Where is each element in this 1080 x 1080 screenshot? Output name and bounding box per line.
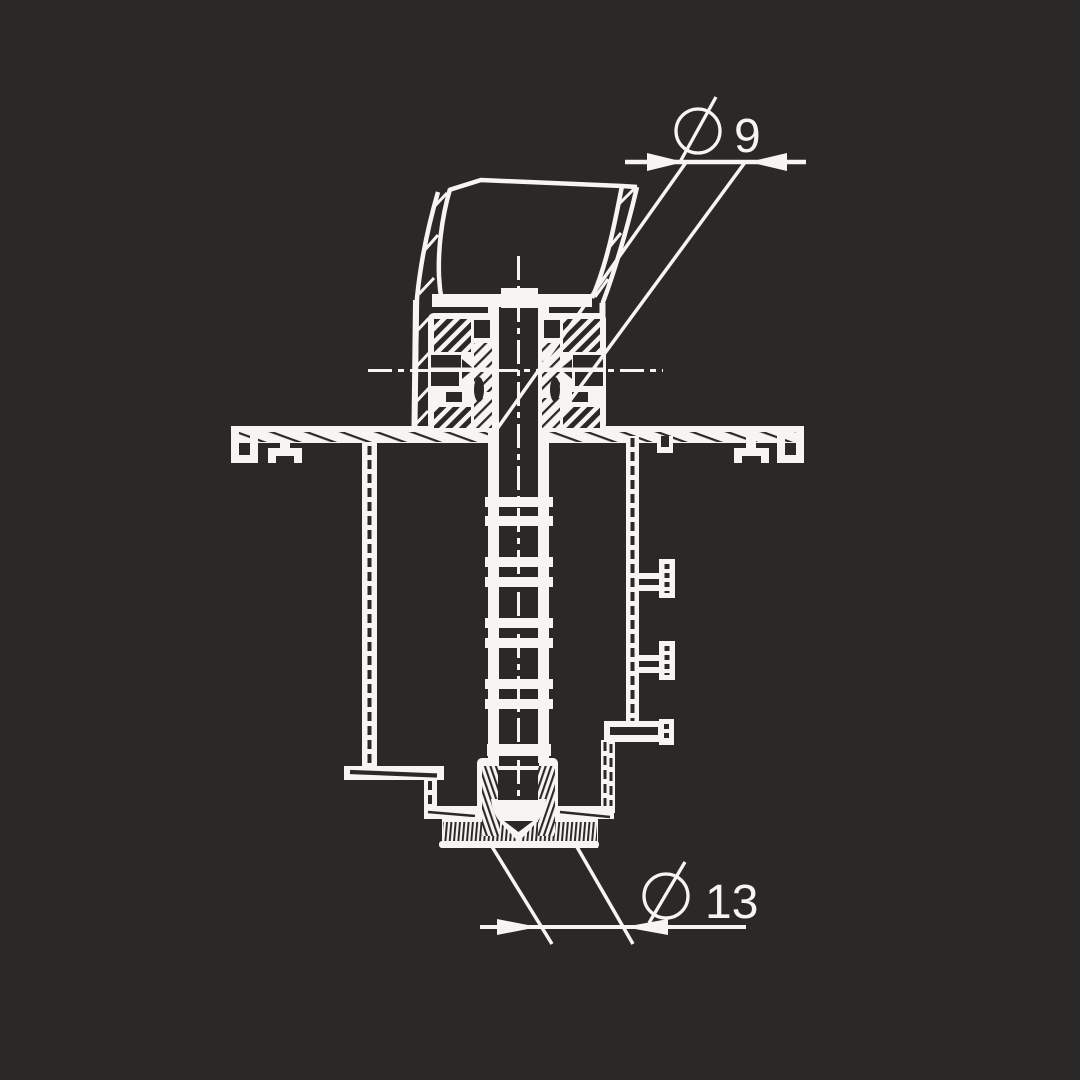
svg-text:13: 13 xyxy=(705,876,758,929)
svg-text:9: 9 xyxy=(734,110,761,163)
